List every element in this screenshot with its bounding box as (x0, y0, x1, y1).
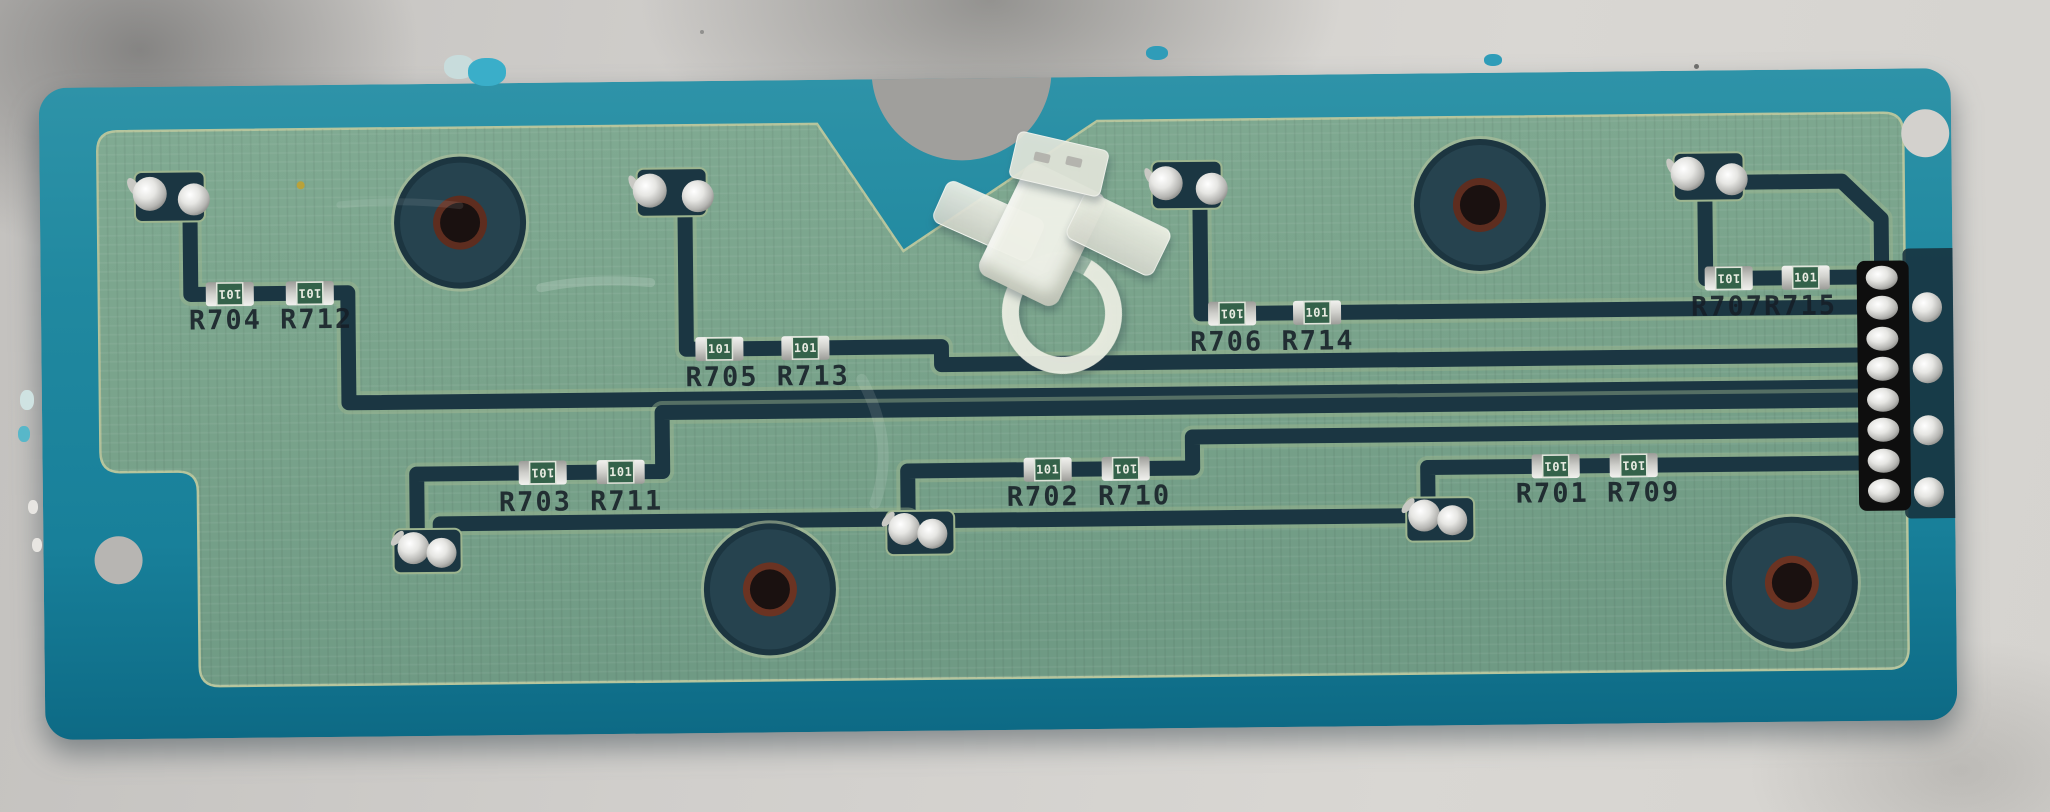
silkscreen-label: R706 R714 (1190, 325, 1355, 358)
resistor-marking: 101 (1622, 458, 1645, 472)
edge-connector (1856, 248, 1957, 519)
smd-resistor: 101 (1782, 265, 1830, 290)
silkscreen-label: R703 R711 (499, 486, 664, 519)
smd-resistor: 101 (519, 461, 567, 486)
silkscreen-label: R707R715 (1691, 290, 1837, 323)
resistor-marking: 101 (1114, 462, 1137, 476)
resistor-marking: 101 (1717, 271, 1740, 285)
edge-chip (32, 538, 42, 552)
mounting-hole (392, 155, 527, 290)
resistor-marking: 101 (1544, 459, 1567, 473)
resistor-marking: 101 (609, 465, 632, 479)
resistor-marking: 101 (1220, 306, 1243, 320)
smd-resistor: 101 (695, 337, 743, 362)
resistor-marking: 101 (531, 466, 554, 480)
smd-resistor: 101 (1610, 453, 1658, 478)
resistor-marking: 101 (1794, 270, 1817, 284)
silkscreen-label: R701 R709 (1516, 477, 1681, 510)
edge-chip (20, 390, 34, 410)
resistor-marking: 101 (298, 286, 321, 300)
smd-resistor: 101 (1705, 266, 1753, 291)
edge-chip (1146, 46, 1168, 60)
smd-resistor: 101 (1102, 456, 1150, 481)
smd-resistor: 101 (1293, 300, 1341, 325)
pcb-photo-svg: R704 R712 R705 R713 R706 R714 R707R715 R… (39, 68, 1958, 740)
edge-chip (28, 500, 38, 514)
dust-speck (700, 30, 704, 34)
resistor-marking: 101 (1036, 462, 1059, 476)
clip-metal-pin (1065, 156, 1083, 168)
resistor-marking: 101 (794, 341, 817, 355)
clip-metal-pin (1033, 151, 1051, 163)
resistor-marking: 101 (218, 287, 241, 301)
resistor-marking: 101 (708, 342, 731, 356)
edge-chip (468, 58, 506, 86)
mounting-hole (1412, 137, 1547, 272)
pcb-board: R704 R712 R705 R713 R706 R714 R707R715 R… (39, 68, 1958, 740)
mounting-hole (702, 522, 837, 657)
photo-canvas: R704 R712 R705 R713 R706 R714 R707R715 R… (0, 0, 2050, 812)
silkscreen-label: R704 R712 (189, 304, 354, 337)
silkscreen-label: R705 R713 (685, 361, 850, 394)
smd-resistor: 101 (1024, 457, 1072, 482)
smd-resistor: 101 (1532, 454, 1580, 479)
smd-resistor: 101 (206, 282, 254, 307)
resistor-marking: 101 (1305, 306, 1328, 320)
edge-chip (1484, 54, 1502, 66)
smd-resistor: 101 (597, 460, 645, 485)
dust-speck (1694, 64, 1699, 69)
mounting-hole (1724, 515, 1859, 650)
smd-resistor: 101 (286, 281, 334, 306)
silkscreen-label: R702 R710 (1007, 480, 1172, 513)
smd-resistor: 101 (1208, 301, 1256, 326)
smd-resistor: 101 (781, 336, 829, 361)
edge-chip (18, 426, 30, 442)
